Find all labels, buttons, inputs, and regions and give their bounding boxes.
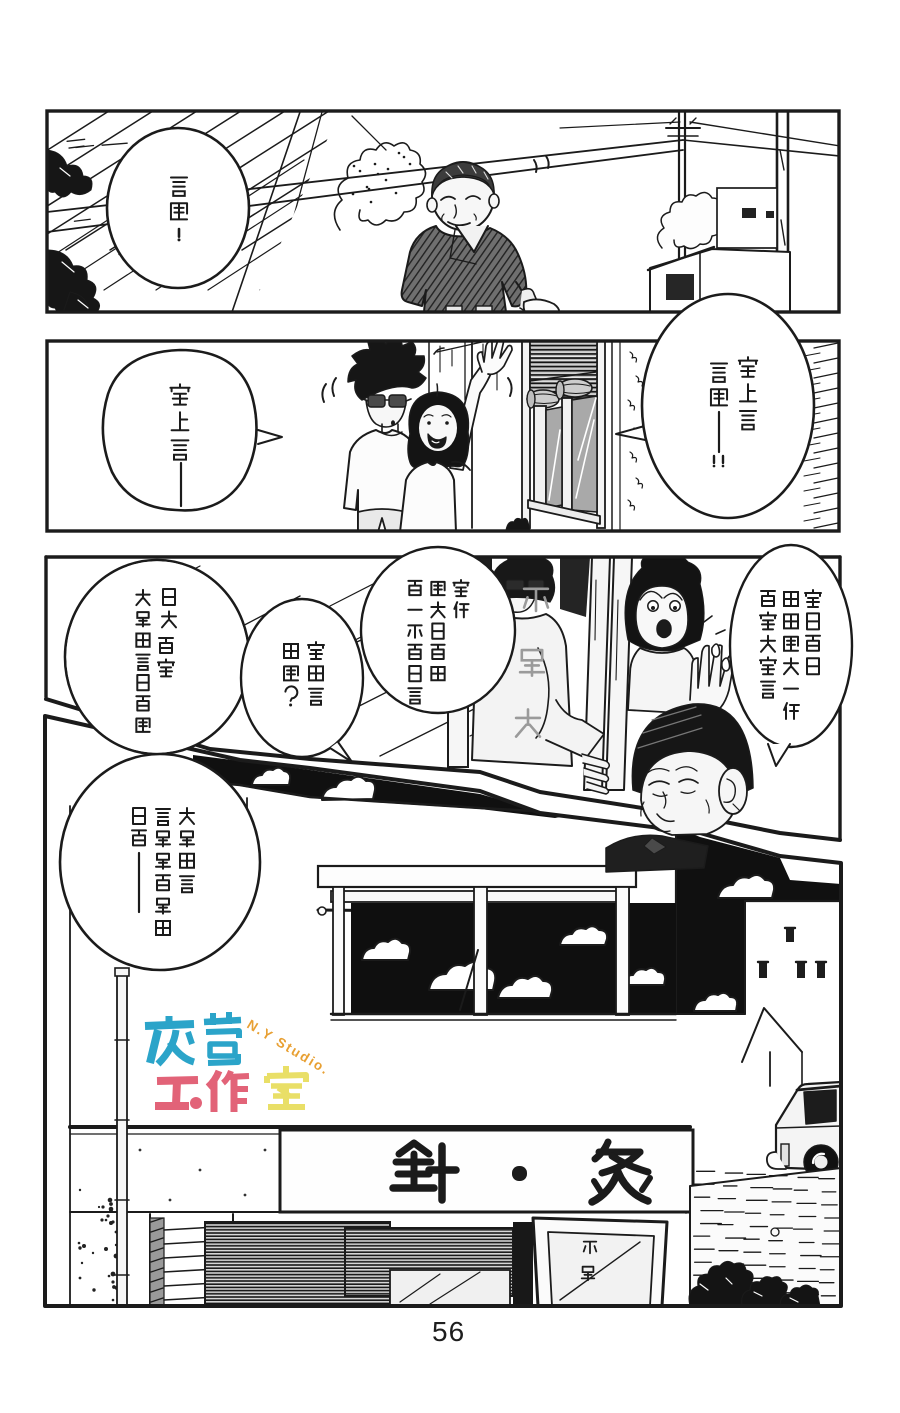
svg-text:56: 56 [432,1316,465,1347]
